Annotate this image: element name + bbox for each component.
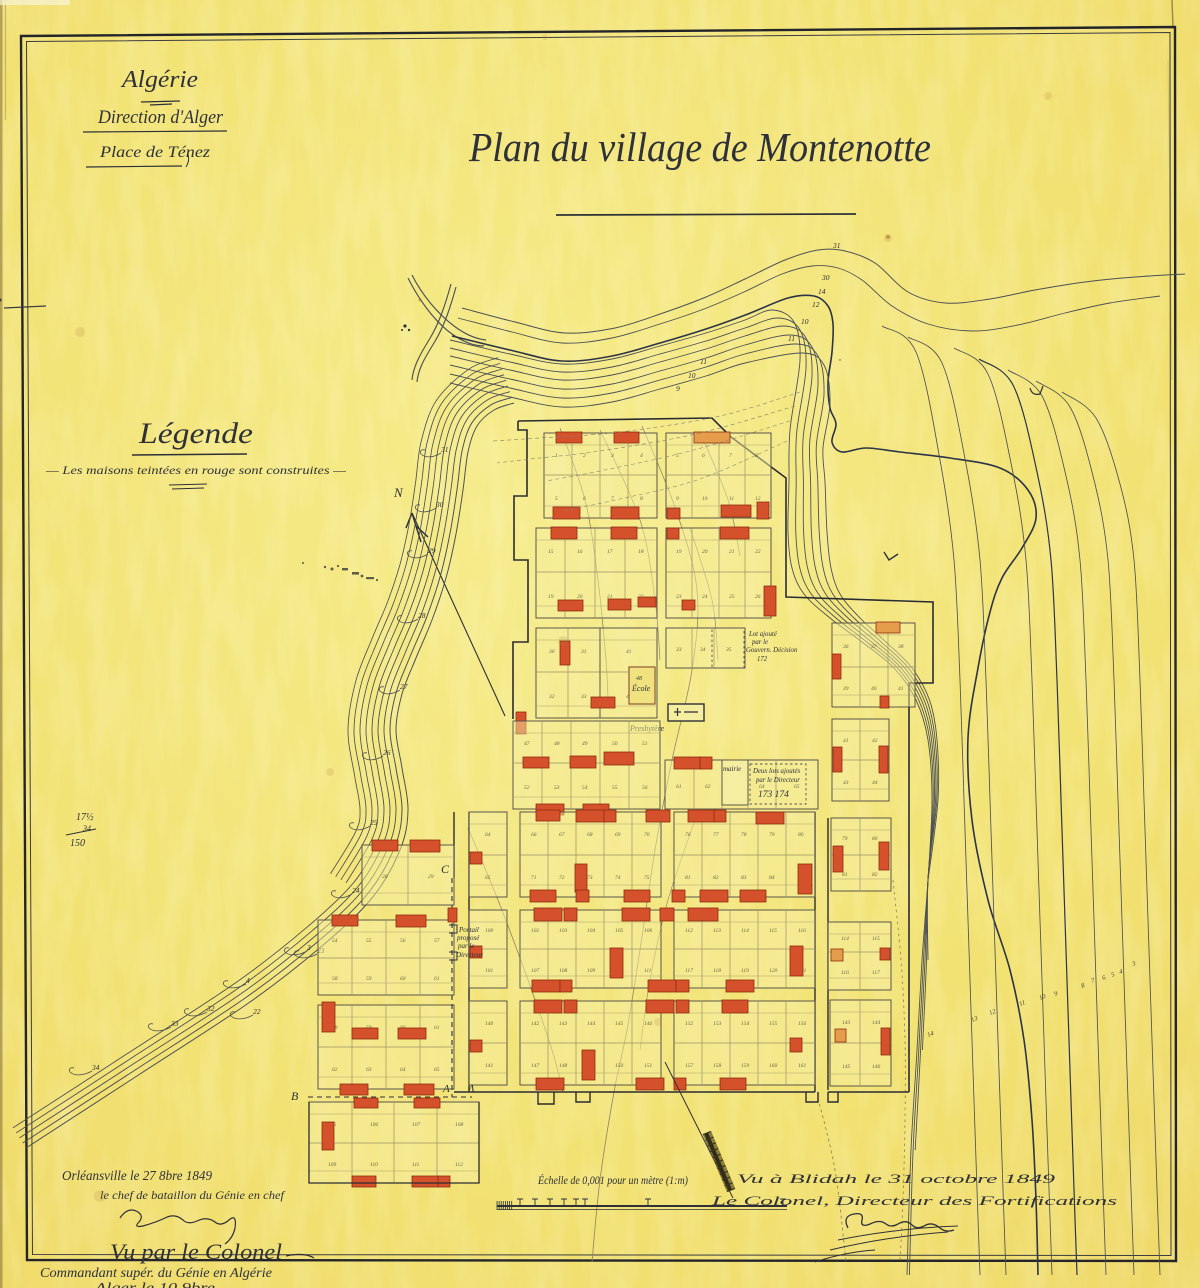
svg-text:41: 41: [898, 685, 904, 692]
svg-text:11: 11: [729, 496, 734, 502]
svg-text:Échelle de 0,001 pour un mètre: Échelle de 0,001 pour un mètre (1:m): [537, 1173, 688, 1187]
svg-text:58: 58: [332, 976, 338, 982]
svg-text:12: 12: [755, 496, 761, 502]
svg-text:69: 69: [615, 832, 621, 838]
svg-text:153: 153: [713, 1021, 722, 1027]
svg-text:19: 19: [676, 549, 682, 555]
svg-text:proposé: proposé: [456, 934, 480, 942]
svg-text:44: 44: [872, 779, 878, 786]
svg-text:32: 32: [206, 1004, 215, 1013]
svg-text:25: 25: [729, 594, 735, 600]
svg-text:62: 62: [332, 1067, 338, 1073]
svg-text:18: 18: [638, 549, 644, 555]
svg-text:142: 142: [531, 1020, 540, 1027]
svg-text:28: 28: [382, 874, 388, 880]
svg-text:110: 110: [370, 1162, 378, 1168]
svg-text:23: 23: [676, 594, 682, 600]
svg-text:Portail: Portail: [458, 926, 479, 934]
svg-text:29: 29: [428, 874, 434, 880]
svg-text:10: 10: [688, 371, 696, 380]
svg-text:Alger le 10 9bre: Alger le 10 9bre: [94, 1281, 215, 1288]
svg-text:4: 4: [640, 452, 643, 459]
svg-text:100: 100: [485, 928, 494, 934]
svg-text:151: 151: [644, 1063, 653, 1069]
svg-text:3: 3: [610, 453, 614, 459]
svg-text:33: 33: [675, 647, 682, 653]
svg-text:par le Directeur: par le Directeur: [755, 777, 800, 784]
svg-text:114: 114: [741, 927, 749, 934]
svg-text:109: 109: [587, 968, 596, 974]
svg-text:Vu par le Colonel: Vu par le Colonel: [110, 1239, 282, 1264]
svg-text:41: 41: [843, 737, 849, 744]
svg-text:150: 150: [615, 1063, 624, 1069]
svg-text:Orléansville le 27 8bre 1849: Orléansville le 27 8bre 1849: [62, 1169, 212, 1184]
svg-text:55: 55: [612, 785, 618, 791]
svg-text:Lot ajouté: Lot ajouté: [748, 631, 778, 638]
svg-text:144: 144: [587, 1020, 596, 1027]
svg-text:117: 117: [685, 968, 693, 974]
svg-text:81: 81: [842, 872, 848, 878]
svg-text:80: 80: [872, 836, 878, 842]
svg-text:31: 31: [580, 649, 587, 655]
svg-text:65: 65: [794, 784, 800, 790]
svg-text:53: 53: [554, 785, 560, 791]
svg-text:115: 115: [872, 936, 880, 942]
svg-text:7: 7: [729, 453, 732, 459]
svg-text:145: 145: [615, 1020, 624, 1027]
svg-text:65: 65: [434, 1067, 440, 1073]
svg-text:84: 84: [769, 874, 775, 881]
svg-text:59: 59: [366, 976, 372, 982]
svg-text:116: 116: [841, 970, 849, 976]
svg-text:76: 76: [685, 832, 691, 838]
svg-text:107: 107: [531, 968, 540, 974]
svg-text:80: 80: [798, 832, 804, 838]
svg-text:144: 144: [872, 1019, 881, 1026]
svg-text:37: 37: [870, 644, 877, 650]
svg-text:108: 108: [559, 968, 568, 974]
svg-text:61: 61: [434, 976, 440, 982]
svg-text:22: 22: [253, 1007, 261, 1016]
svg-text:par le: par le: [751, 639, 768, 646]
svg-text:32: 32: [548, 694, 555, 700]
svg-text:27: 27: [400, 682, 408, 691]
svg-text:C: C: [441, 862, 450, 876]
svg-text:107: 107: [412, 1122, 421, 1128]
svg-text:29: 29: [428, 546, 436, 555]
svg-text:26: 26: [755, 594, 761, 600]
svg-text:20: 20: [577, 594, 583, 600]
svg-text:10: 10: [801, 317, 809, 326]
svg-text:119: 119: [741, 968, 749, 974]
svg-text:3: 3: [306, 943, 311, 952]
svg-text:51: 51: [642, 741, 648, 747]
svg-text:16: 16: [577, 549, 583, 555]
svg-text:75: 75: [644, 875, 650, 881]
svg-text:Vu à Blidah le 31 octobre 1849: Vu à Blidah le 31 octobre 1849: [737, 1171, 1056, 1186]
svg-text:— Les maisons teintées en roug: — Les maisons teintées en rouge sont con…: [45, 463, 347, 477]
svg-text:112: 112: [685, 928, 693, 934]
svg-text:115: 115: [769, 928, 777, 934]
svg-text:22: 22: [755, 549, 761, 555]
svg-text:64: 64: [400, 1066, 406, 1073]
svg-text:103: 103: [559, 928, 568, 934]
svg-text:105: 105: [615, 928, 624, 934]
svg-text:158: 158: [713, 1063, 722, 1069]
svg-text:33: 33: [170, 1019, 179, 1028]
svg-text:35: 35: [725, 647, 732, 653]
svg-text:83: 83: [741, 875, 747, 881]
svg-text:A: A: [442, 1083, 450, 1095]
svg-text:39: 39: [842, 686, 849, 692]
svg-text:6: 6: [583, 496, 586, 502]
svg-text:30: 30: [821, 273, 830, 282]
svg-text:152: 152: [685, 1021, 694, 1027]
svg-text:141: 141: [485, 1062, 494, 1069]
svg-text:81: 81: [685, 875, 691, 881]
svg-text:8: 8: [755, 453, 758, 459]
svg-text:57: 57: [434, 938, 440, 944]
svg-text:par le: par le: [457, 942, 475, 950]
svg-text:24: 24: [702, 593, 708, 600]
svg-text:Directeur: Directeur: [455, 951, 483, 959]
svg-text:56: 56: [642, 785, 648, 791]
svg-text:116: 116: [798, 928, 806, 934]
svg-text:Λ: Λ: [467, 1083, 475, 1095]
svg-text:26: 26: [383, 748, 391, 757]
svg-text:70: 70: [644, 832, 650, 838]
svg-text:Commandant supér. du Génie en: Commandant supér. du Génie en Algérie: [40, 1266, 272, 1281]
svg-text:68: 68: [587, 832, 593, 838]
svg-text:63: 63: [366, 1067, 372, 1073]
svg-text:117: 117: [872, 970, 880, 976]
svg-text:140: 140: [485, 1020, 494, 1027]
svg-text:B: B: [291, 1089, 299, 1103]
svg-text:172: 172: [757, 656, 768, 663]
svg-text:143: 143: [559, 1020, 568, 1027]
svg-text:155: 155: [769, 1021, 778, 1027]
svg-text:20: 20: [702, 549, 708, 555]
svg-text:34: 34: [91, 1063, 100, 1072]
svg-text:50: 50: [612, 741, 618, 747]
svg-text:19: 19: [548, 594, 554, 600]
svg-text:145: 145: [842, 1063, 851, 1070]
svg-text:120: 120: [769, 968, 778, 974]
svg-text:Place de Ténez: Place de Ténez: [99, 144, 211, 161]
svg-text:4: 4: [246, 976, 250, 985]
svg-text:104: 104: [587, 927, 596, 934]
svg-text:33: 33: [580, 694, 587, 700]
svg-text:146: 146: [872, 1063, 881, 1070]
svg-text:150: 150: [70, 838, 85, 849]
svg-text:28: 28: [418, 611, 426, 620]
svg-text:65: 65: [485, 875, 491, 881]
svg-text:112: 112: [455, 1162, 463, 1168]
svg-text:61: 61: [676, 784, 682, 790]
svg-text:113: 113: [713, 928, 721, 934]
svg-text:61: 61: [434, 1025, 440, 1031]
svg-text:106: 106: [644, 928, 653, 934]
svg-text:mairie: mairie: [723, 765, 741, 773]
svg-text:41: 41: [626, 648, 632, 655]
svg-text:21: 21: [729, 549, 735, 555]
svg-text:10: 10: [702, 496, 708, 502]
svg-text:60: 60: [400, 976, 406, 982]
svg-text:74: 74: [615, 874, 621, 881]
svg-text:55: 55: [366, 938, 372, 944]
svg-text:11: 11: [788, 334, 795, 343]
svg-text:30: 30: [548, 649, 555, 655]
svg-text:109: 109: [328, 1162, 337, 1168]
svg-text:31: 31: [440, 445, 449, 454]
svg-text:64: 64: [759, 783, 765, 790]
svg-text:148: 148: [559, 1062, 568, 1069]
svg-text:36: 36: [842, 644, 849, 650]
svg-text:Direction d'Alger: Direction d'Alger: [97, 107, 224, 128]
svg-text:49: 49: [582, 740, 588, 747]
svg-text:72: 72: [559, 875, 565, 881]
svg-text:5: 5: [676, 453, 679, 459]
svg-text:54: 54: [582, 784, 588, 791]
svg-text:157: 157: [685, 1063, 694, 1069]
svg-text:40: 40: [871, 685, 877, 692]
svg-text:146: 146: [644, 1020, 653, 1027]
svg-text:77: 77: [713, 832, 719, 838]
svg-text:118: 118: [713, 968, 721, 974]
svg-text:71: 71: [531, 875, 537, 881]
svg-text:111: 111: [412, 1162, 420, 1168]
svg-text:161: 161: [798, 1063, 807, 1069]
svg-text:9: 9: [676, 384, 680, 393]
svg-text:43: 43: [843, 779, 849, 786]
svg-text:9: 9: [676, 496, 679, 502]
svg-text:12: 12: [812, 300, 820, 309]
svg-text:102: 102: [531, 928, 540, 934]
svg-text:111: 111: [644, 968, 652, 974]
svg-text:154: 154: [741, 1020, 750, 1027]
svg-text:108: 108: [455, 1122, 464, 1128]
svg-text:56: 56: [400, 938, 406, 944]
svg-text:79: 79: [769, 832, 775, 838]
svg-text:64: 64: [485, 831, 491, 838]
svg-text:52: 52: [524, 785, 530, 791]
svg-text:82: 82: [713, 875, 719, 881]
svg-text:1: 1: [555, 453, 558, 459]
svg-text:7: 7: [611, 496, 614, 502]
svg-text:Plan du village de Montenotte: Plan du village de Montenotte: [468, 124, 931, 170]
svg-text:Deux lots ajoutés: Deux lots ajoutés: [752, 768, 801, 775]
svg-text:147: 147: [531, 1062, 540, 1069]
svg-text:École: École: [631, 683, 651, 693]
svg-text:82: 82: [872, 872, 878, 878]
svg-text:48: 48: [554, 740, 560, 747]
svg-text:62: 62: [705, 784, 711, 790]
svg-text:114: 114: [841, 935, 849, 942]
svg-text:15: 15: [548, 549, 554, 555]
svg-text:11: 11: [700, 357, 707, 366]
svg-text:N: N: [393, 485, 404, 500]
svg-text:17½: 17½: [76, 812, 94, 823]
svg-text:5: 5: [555, 496, 558, 502]
svg-text:42: 42: [872, 737, 878, 744]
svg-text:47: 47: [524, 740, 530, 747]
svg-text:101: 101: [485, 968, 494, 974]
svg-text:38: 38: [897, 644, 904, 650]
svg-text:143: 143: [842, 1019, 851, 1026]
svg-text:66: 66: [531, 832, 537, 838]
svg-text:Le Colonel, Directeur des Fort: Le Colonel, Directeur des Fortifications: [710, 1193, 1117, 1208]
svg-text:79: 79: [842, 836, 848, 842]
svg-text:159: 159: [741, 1063, 750, 1069]
svg-text:8: 8: [640, 496, 643, 502]
svg-text:34: 34: [699, 646, 706, 653]
svg-text:14: 14: [818, 287, 826, 296]
svg-text:73: 73: [587, 875, 593, 881]
svg-text:Gouvern. Décision: Gouvern. Décision: [746, 647, 798, 654]
svg-text:2: 2: [583, 453, 586, 459]
svg-text:160: 160: [769, 1063, 778, 1069]
svg-text:48: 48: [636, 675, 642, 682]
svg-text:67: 67: [559, 832, 565, 838]
svg-text:54: 54: [332, 937, 338, 944]
svg-text:25: 25: [370, 818, 378, 827]
svg-text:106: 106: [370, 1122, 379, 1128]
svg-text:173 174: 173 174: [758, 790, 789, 800]
svg-text:78: 78: [741, 832, 747, 838]
svg-text:24: 24: [352, 886, 360, 895]
svg-text:le chef de bataillon du Génie: le chef de bataillon du Génie en chef: [100, 1188, 286, 1202]
svg-text:156: 156: [798, 1021, 807, 1027]
svg-text:30: 30: [435, 500, 444, 509]
svg-text:6: 6: [702, 453, 705, 459]
svg-text:Algérie: Algérie: [120, 67, 199, 93]
svg-text:Légende: Légende: [138, 417, 253, 450]
svg-text:31: 31: [832, 241, 841, 250]
svg-text:17: 17: [607, 549, 613, 555]
